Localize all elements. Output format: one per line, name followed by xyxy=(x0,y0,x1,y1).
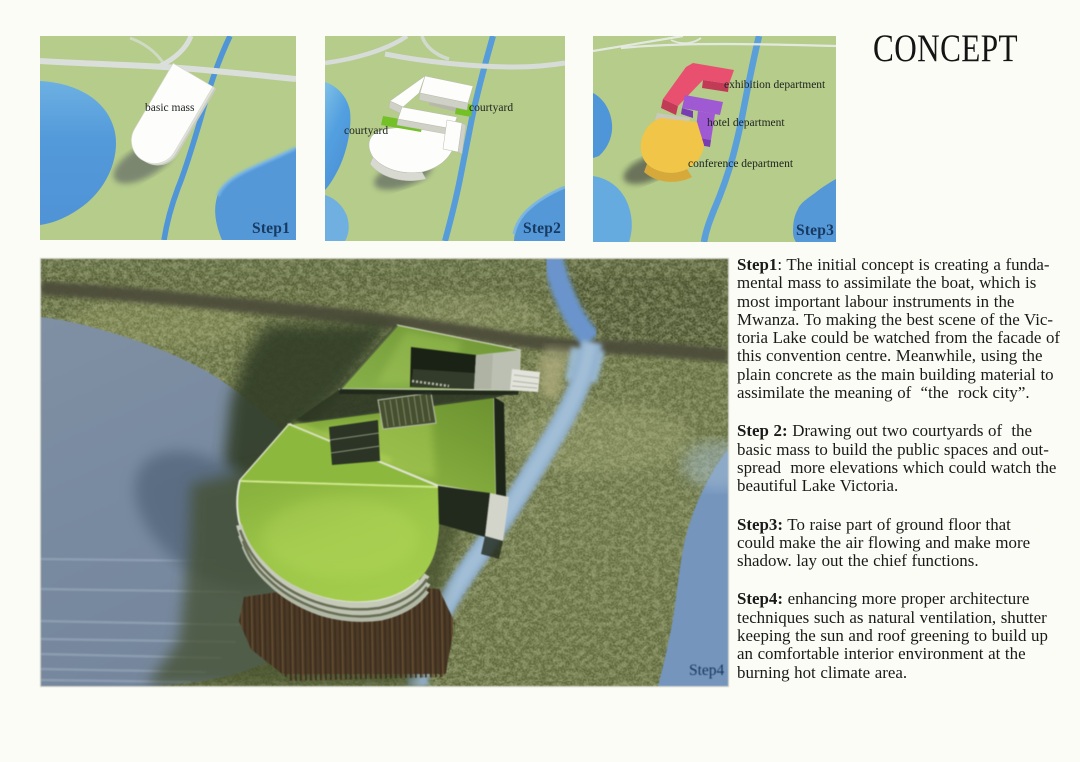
svg-text:exhibition department: exhibition department xyxy=(724,79,826,91)
svg-text:basic mass: basic mass xyxy=(145,102,195,114)
svg-text:Step4: Step4 xyxy=(689,662,725,679)
svg-text:courtyard: courtyard xyxy=(344,125,388,137)
svg-text:Step2: Step2 xyxy=(523,220,561,237)
svg-text:Step1: Step1 xyxy=(252,220,290,237)
svg-text:conference department: conference department xyxy=(688,158,794,170)
svg-text:hotel department: hotel department xyxy=(707,117,785,129)
svg-text:courtyard: courtyard xyxy=(469,102,513,114)
svg-text:Step3: Step3 xyxy=(796,222,834,239)
